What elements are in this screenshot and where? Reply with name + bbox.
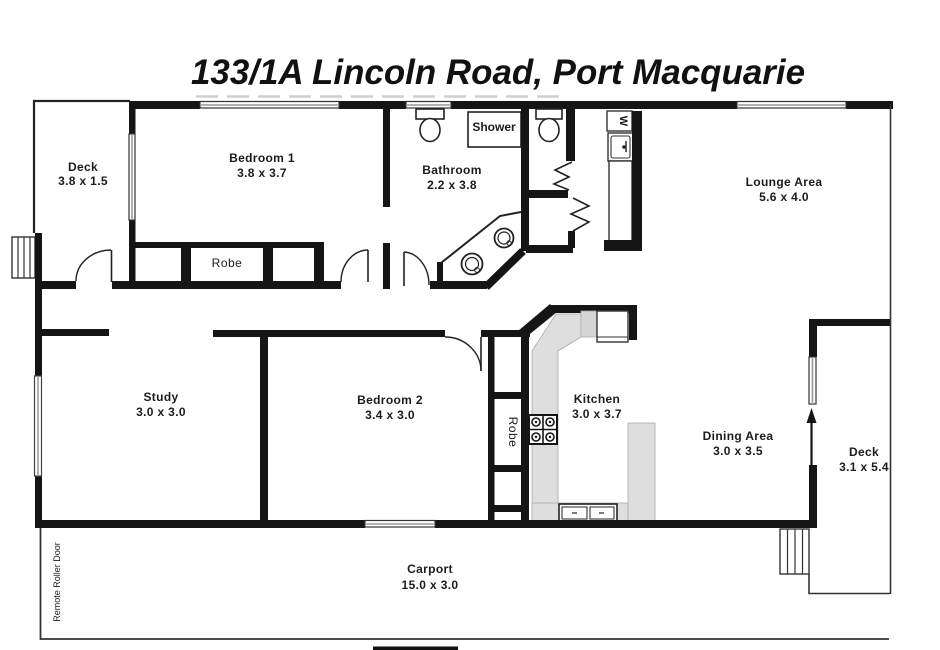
svg-text:3.0 x 3.0: 3.0 x 3.0 bbox=[136, 405, 186, 419]
svg-text:Kitchen: Kitchen bbox=[574, 392, 620, 406]
svg-text:2.2 x 3.8: 2.2 x 3.8 bbox=[427, 178, 477, 192]
svg-text:Deck: Deck bbox=[68, 160, 98, 174]
svg-text:Lounge Area: Lounge Area bbox=[746, 175, 823, 189]
svg-text:3.8 x 1.5: 3.8 x 1.5 bbox=[58, 174, 108, 188]
svg-text:Deck: Deck bbox=[849, 445, 879, 459]
svg-text:Bedroom 2: Bedroom 2 bbox=[357, 393, 423, 407]
svg-text:3.1 x 5.4: 3.1 x 5.4 bbox=[839, 460, 889, 474]
svg-text:3.8 x 3.7: 3.8 x 3.7 bbox=[237, 166, 287, 180]
svg-text:3.0 x 3.7: 3.0 x 3.7 bbox=[572, 407, 622, 421]
svg-text:Robe: Robe bbox=[506, 417, 520, 448]
svg-text:Robe: Robe bbox=[212, 256, 243, 270]
svg-text:W: W bbox=[617, 116, 629, 127]
svg-text:Bedroom 1: Bedroom 1 bbox=[229, 151, 295, 165]
svg-text:5.6 x 4.0: 5.6 x 4.0 bbox=[759, 190, 809, 204]
svg-text:15.0 x 3.0: 15.0 x 3.0 bbox=[402, 578, 459, 592]
svg-text:3.0 x 3.5: 3.0 x 3.5 bbox=[713, 444, 763, 458]
svg-text:Study: Study bbox=[143, 390, 178, 404]
svg-text:Carport: Carport bbox=[407, 562, 453, 576]
svg-text:Shower: Shower bbox=[472, 120, 516, 134]
svg-text:3.4 x 3.0: 3.4 x 3.0 bbox=[365, 408, 415, 422]
svg-text:Bathroom: Bathroom bbox=[422, 163, 481, 177]
svg-text:Remote Roller Door: Remote Roller Door bbox=[52, 542, 62, 622]
svg-text:Dining Area: Dining Area bbox=[703, 429, 774, 443]
svg-text:133/1A Lincoln Road, Port Macq: 133/1A Lincoln Road, Port Macquarie bbox=[191, 53, 805, 92]
